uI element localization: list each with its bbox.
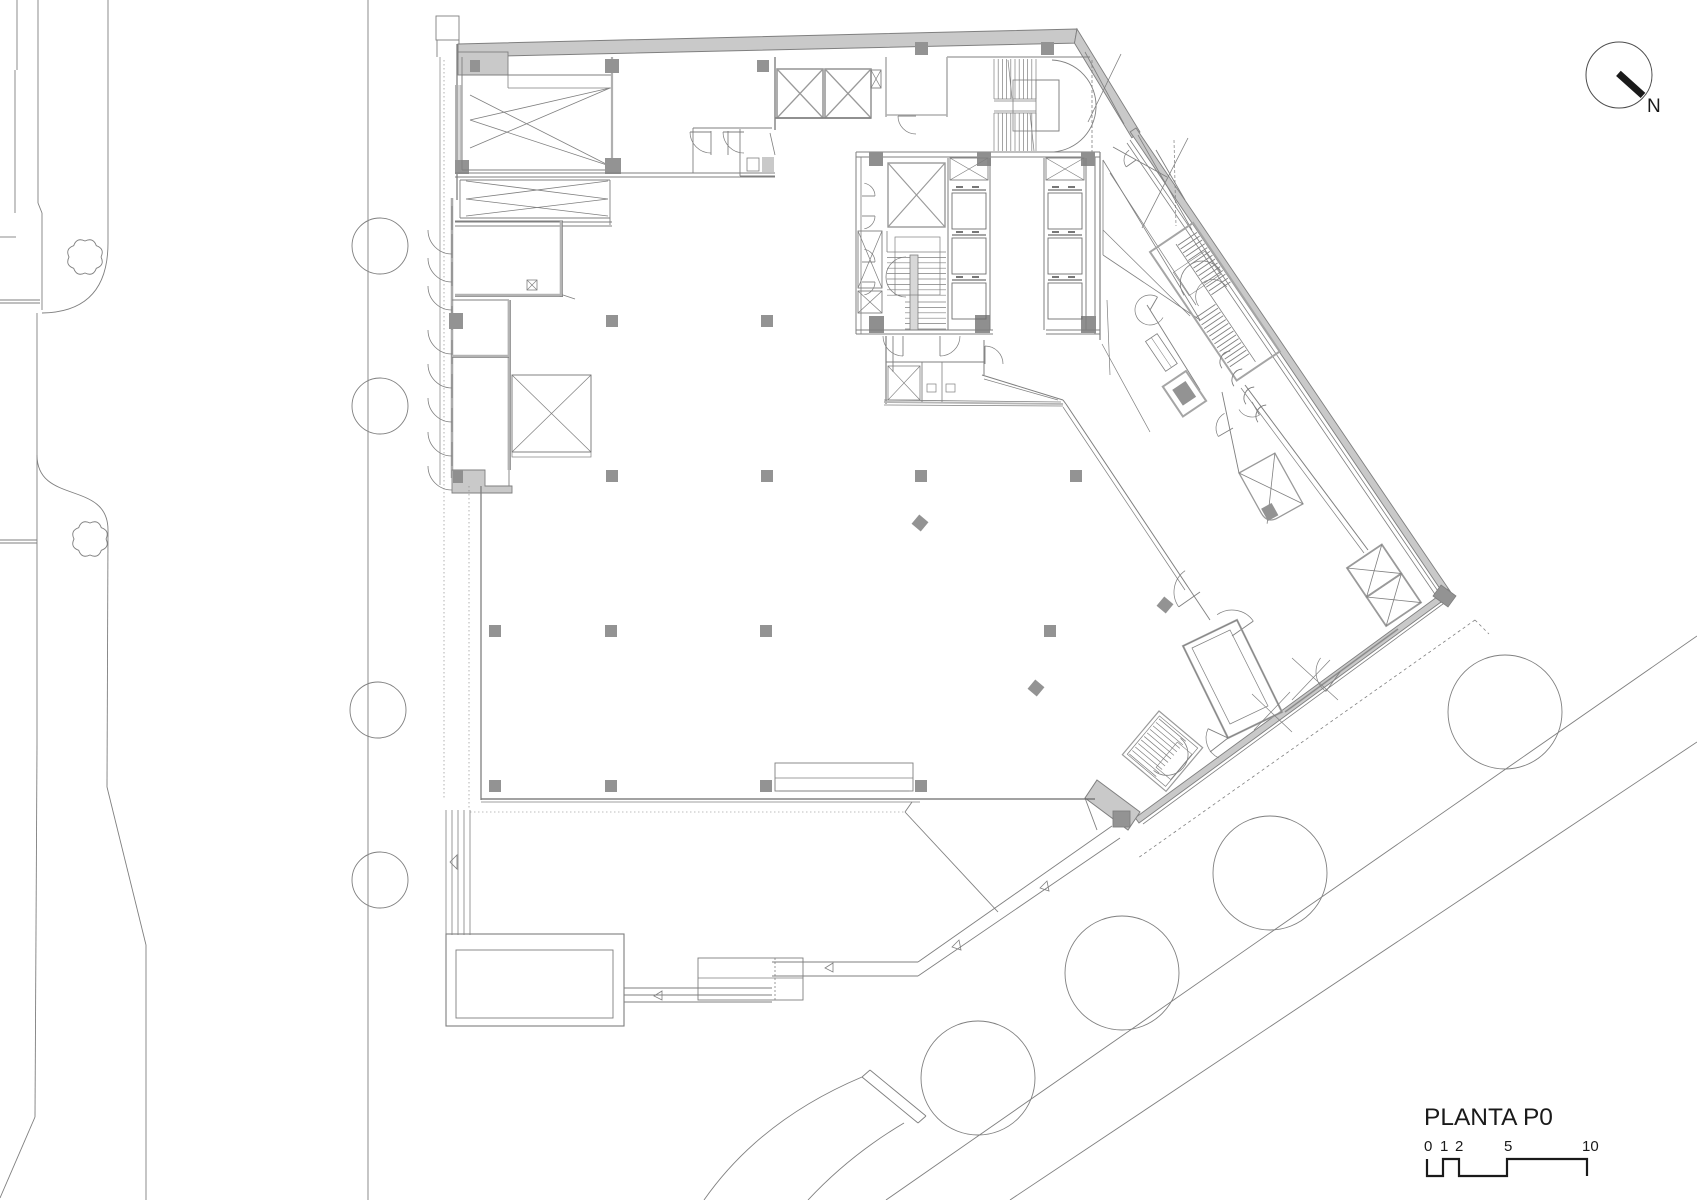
svg-text:2: 2: [1455, 1138, 1463, 1155]
svg-text:0: 0: [1424, 1138, 1432, 1155]
svg-text:N: N: [1647, 96, 1661, 117]
svg-text:PLANTA P0: PLANTA P0: [1424, 1104, 1553, 1131]
svg-text:1: 1: [1440, 1138, 1448, 1155]
svg-text:10: 10: [1582, 1138, 1599, 1155]
svg-text:5: 5: [1504, 1138, 1512, 1155]
